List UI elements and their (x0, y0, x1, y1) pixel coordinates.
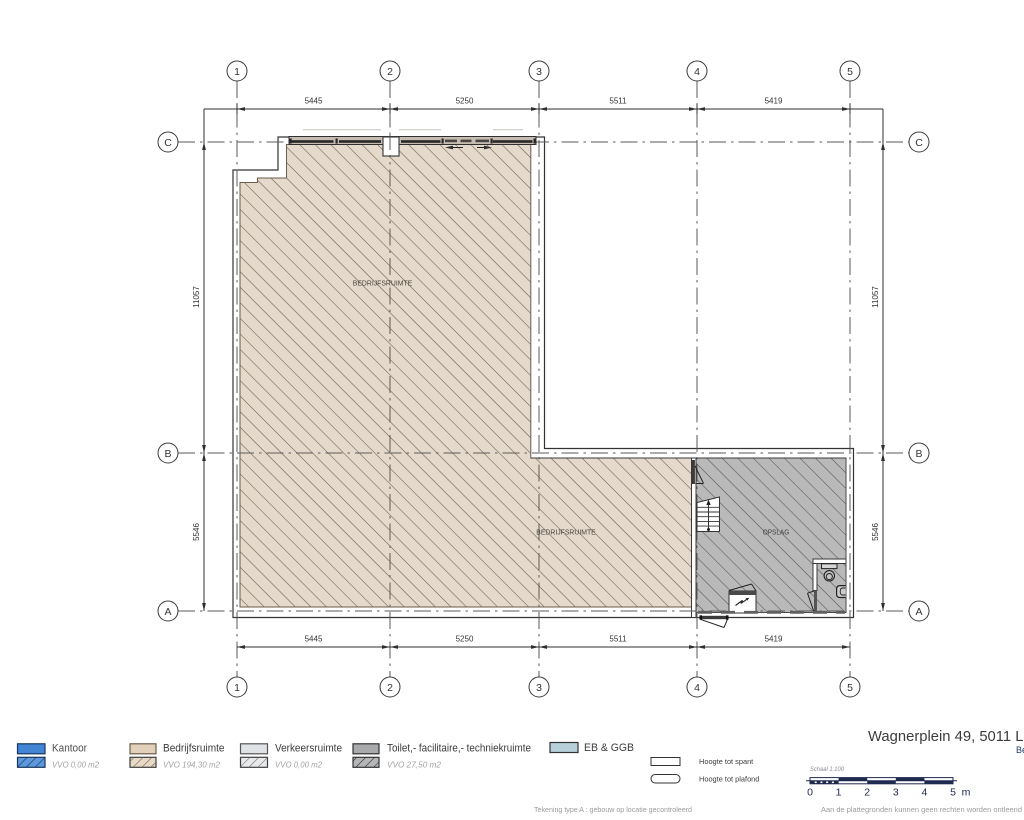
svg-text:C: C (915, 137, 923, 149)
svg-text:4: 4 (694, 682, 700, 694)
svg-text:5419: 5419 (765, 635, 783, 644)
svg-text:5445: 5445 (305, 635, 323, 644)
svg-text:Tekening type A : gebouw op lo: Tekening type A : gebouw op locatie geco… (534, 805, 692, 814)
svg-text:m: m (962, 787, 971, 799)
svg-text:2: 2 (387, 66, 393, 78)
svg-text:11057: 11057 (871, 286, 880, 308)
svg-text:1: 1 (234, 66, 240, 78)
svg-text:A: A (164, 606, 171, 618)
svg-text:Wagnerplein 49, 5011 LR Tilbur: Wagnerplein 49, 5011 LR Tilburg (868, 729, 1024, 745)
svg-text:Bedrijfsruimte: Bedrijfsruimte (163, 742, 225, 754)
svg-text:BEDRIJFSRUIMTE: BEDRIJFSRUIMTE (353, 281, 413, 288)
svg-text:B: B (164, 448, 171, 460)
svg-text:1: 1 (234, 682, 240, 694)
svg-text:B: B (915, 448, 922, 460)
svg-text:OPSLAG: OPSLAG (763, 530, 790, 537)
svg-text:5: 5 (847, 682, 853, 694)
svg-text:VVO 0,00 m2: VVO 0,00 m2 (52, 760, 100, 769)
svg-text:Hoogte tot spant: Hoogte tot spant (699, 757, 753, 766)
svg-text:5546: 5546 (871, 523, 880, 541)
svg-text:3: 3 (536, 66, 542, 78)
svg-text:BEDRIJFSRUIMTE: BEDRIJFSRUIMTE (536, 530, 596, 537)
svg-text:2: 2 (387, 682, 393, 694)
svg-text:0: 0 (807, 787, 813, 799)
svg-text:EB & GGB: EB & GGB (584, 742, 634, 754)
svg-text:5511: 5511 (609, 97, 627, 106)
svg-text:A: A (915, 606, 922, 618)
svg-text:VVO 0,00 m2: VVO 0,00 m2 (275, 760, 323, 769)
svg-text:4: 4 (694, 66, 700, 78)
svg-text:Toilet,- facilitaire,- technie: Toilet,- facilitaire,- techniekruimte (387, 742, 531, 754)
svg-text:Begane grond: Begane grond (1016, 745, 1024, 755)
svg-text:5445: 5445 (305, 97, 323, 106)
svg-text:5: 5 (950, 787, 956, 799)
svg-text:Aan de plattegronden kunnen ge: Aan de plattegronden kunnen geen rechten… (821, 805, 1022, 814)
svg-text:5250: 5250 (456, 97, 474, 106)
svg-text:2: 2 (864, 787, 870, 799)
svg-text:Schaal 1:100: Schaal 1:100 (810, 766, 845, 773)
svg-text:5250: 5250 (456, 635, 474, 644)
svg-text:3: 3 (893, 787, 899, 799)
svg-text:5511: 5511 (609, 635, 627, 644)
svg-text:Kantoor: Kantoor (52, 742, 87, 754)
svg-text:5: 5 (847, 66, 853, 78)
svg-text:1: 1 (836, 787, 842, 799)
svg-text:4: 4 (921, 787, 927, 799)
svg-text:5419: 5419 (765, 97, 783, 106)
svg-text:Hoogte tot plafond: Hoogte tot plafond (699, 775, 759, 784)
svg-text:11057: 11057 (192, 286, 201, 308)
svg-text:VVO 27,50 m2: VVO 27,50 m2 (387, 760, 442, 769)
svg-text:5546: 5546 (192, 523, 201, 541)
svg-text:3: 3 (536, 682, 542, 694)
svg-text:Verkeersruimte: Verkeersruimte (275, 742, 342, 754)
svg-text:C: C (164, 137, 172, 149)
svg-text:VVO 194,30 m2: VVO 194,30 m2 (163, 760, 221, 769)
